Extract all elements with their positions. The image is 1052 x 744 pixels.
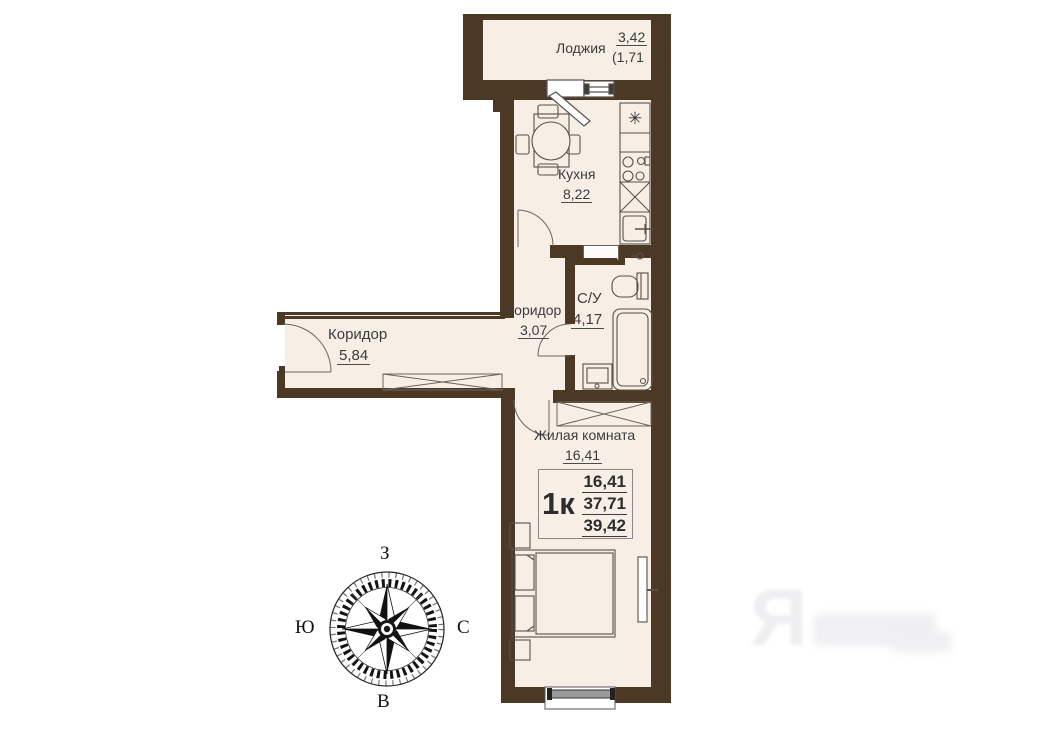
bathtub-icon bbox=[613, 309, 652, 390]
toilet-icon bbox=[612, 273, 648, 299]
compass-label-top: З bbox=[380, 543, 390, 565]
bathroom-sink-icon bbox=[583, 364, 612, 389]
room-area-loggia-sub: (1,71 bbox=[612, 49, 644, 65]
kitchen-counter: ✳ bbox=[620, 103, 653, 244]
living-area-value: 16,41 bbox=[582, 472, 627, 493]
room-label-kitchen: Кухня bbox=[558, 166, 595, 182]
compass-label-left: Ю bbox=[295, 617, 315, 639]
fridge-icon: ✳ bbox=[628, 109, 642, 129]
svg-text:✳: ✳ bbox=[628, 109, 642, 129]
wardrobe-living bbox=[557, 402, 651, 426]
room-label-living: Жилая комната bbox=[534, 427, 635, 443]
room-area-corridor-small: 3,07 bbox=[518, 322, 549, 339]
room-label-loggia: Лоджия bbox=[556, 40, 606, 56]
window-radiator bbox=[545, 687, 615, 709]
plan-linework: ✳ bbox=[0, 0, 1052, 744]
floor-plan: ✳ bbox=[0, 0, 1052, 744]
room-area-bathroom: 4,17 bbox=[571, 311, 604, 329]
room-label-corridor-main: Коридор bbox=[328, 326, 387, 343]
compass-label-right: С bbox=[457, 617, 470, 639]
nightstand bbox=[510, 523, 530, 660]
room-area-kitchen: 8,22 bbox=[561, 186, 592, 203]
towel-dryer-icon bbox=[631, 253, 643, 259]
room-area-loggia: 3,42 bbox=[616, 29, 647, 46]
room-name: Кухня bbox=[558, 166, 595, 182]
compass-label-bottom: В bbox=[377, 691, 390, 713]
room-name: Лоджия bbox=[556, 40, 606, 56]
apartment-type-label: 1к bbox=[542, 486, 575, 522]
room-area-living: 16,41 bbox=[563, 447, 602, 464]
apartment-info-box: 1к 16,41 37,71 39,42 bbox=[538, 469, 633, 539]
balcony-door-window bbox=[547, 80, 614, 126]
room-name: С/У bbox=[577, 290, 602, 307]
bed bbox=[512, 550, 615, 637]
room-name: Коридор bbox=[328, 326, 387, 343]
wall-panel bbox=[638, 557, 658, 622]
kitchen-door bbox=[518, 210, 553, 247]
room-label-bathroom: С/У bbox=[577, 290, 602, 307]
total-area-value: 39,42 bbox=[582, 516, 627, 537]
kitchen-sink-icon bbox=[623, 216, 653, 241]
room-label-corridor-small: Коридор bbox=[506, 302, 561, 318]
stove-icon bbox=[623, 157, 650, 181]
area-without-loggia-value: 37,71 bbox=[582, 494, 627, 515]
room-name: Коридор bbox=[506, 302, 561, 318]
entrance-door bbox=[283, 324, 331, 372]
room-area-corridor-main: 5,84 bbox=[337, 347, 370, 365]
kitchen-table bbox=[516, 105, 580, 175]
compass-rose bbox=[330, 572, 444, 686]
wardrobe-corridor bbox=[383, 374, 502, 390]
room-name: Жилая комната bbox=[534, 427, 635, 443]
